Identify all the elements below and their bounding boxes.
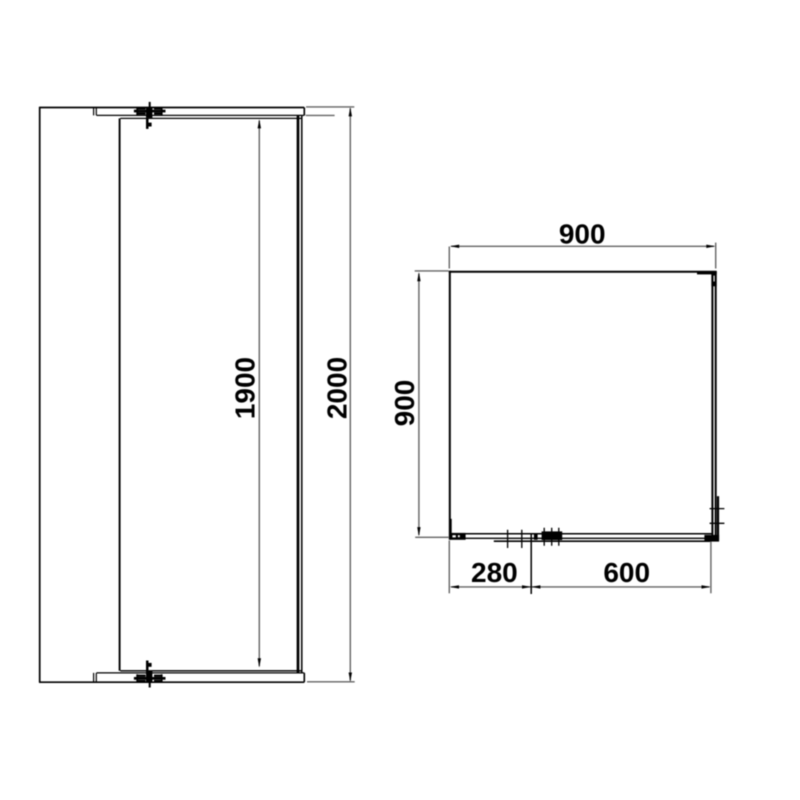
svg-text:280: 280 — [471, 557, 518, 588]
svg-text:900: 900 — [389, 380, 420, 427]
svg-text:900: 900 — [559, 219, 606, 250]
svg-text:1900: 1900 — [229, 357, 260, 419]
svg-text:600: 600 — [603, 557, 650, 588]
svg-text:2000: 2000 — [321, 357, 352, 419]
